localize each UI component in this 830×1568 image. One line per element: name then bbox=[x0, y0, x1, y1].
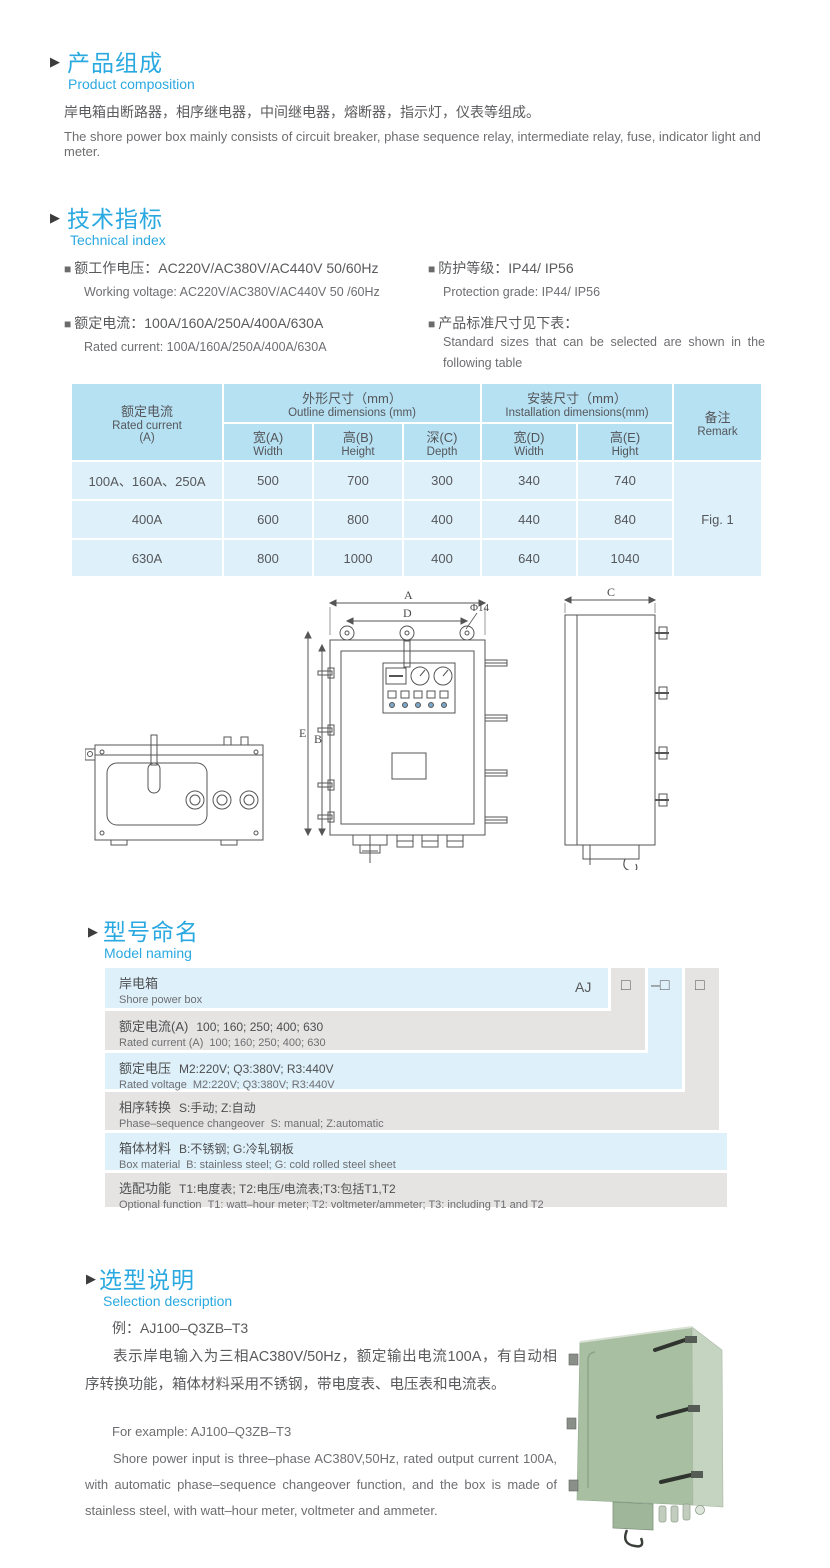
latch-icons-right bbox=[485, 660, 507, 823]
naming-row-optional-function: 选配功能T1:电度表; T2:电压/电流表;T3:包括T1,T2 Optiona… bbox=[105, 1173, 727, 1207]
group-header-outline-dimensions: 外形尺寸（mm） Outline dimensions (mm) bbox=[224, 384, 480, 422]
spec-standard-sizes-zh: ■产品标准尺寸见下表： bbox=[428, 313, 578, 333]
col-header-depth-c: 深(C)Depth bbox=[404, 424, 480, 460]
bullet-icon: ■ bbox=[64, 262, 71, 276]
cell-remark-fig1: Fig. 1 bbox=[674, 462, 761, 576]
side-view-drawing: C bbox=[565, 585, 669, 870]
catalog-page: ▶ 产品组成 Product composition 岸电箱由断路器，相序继电器… bbox=[0, 0, 830, 1568]
cell-value: 640 bbox=[482, 540, 576, 576]
table-row: 400A 600 800 400 440 840 bbox=[72, 501, 761, 538]
cell-value: 1040 bbox=[578, 540, 672, 576]
cell-value: 400 bbox=[404, 501, 480, 538]
section-title-model-naming: 型号命名 bbox=[103, 913, 199, 947]
col-header-rated-current: 额定电流 Rated current (A) bbox=[72, 384, 222, 460]
table-row: 100A、160A、250A 500 700 300 340 740 Fig. … bbox=[72, 462, 761, 499]
cell-value: 600 bbox=[224, 501, 312, 538]
col-header-width-d: 宽(D)Width bbox=[482, 424, 576, 460]
table-row: 630A 800 1000 400 640 1040 bbox=[72, 540, 761, 576]
naming-row-rated-current: 额定电流(A)100; 160; 250; 400; 630 Rated cur… bbox=[105, 1011, 645, 1050]
selection-paragraph-en: Shore power input is three–phase AC380V,… bbox=[85, 1446, 557, 1524]
cell-value: 440 bbox=[482, 501, 576, 538]
spec-rated-current-en: Rated current: 100A/160A/250A/400A/630A bbox=[84, 340, 327, 354]
cell-value: 340 bbox=[482, 462, 576, 499]
section-subtitle-technical-index: Technical index bbox=[70, 232, 166, 248]
svg-text:A: A bbox=[404, 588, 413, 602]
bullet-icon: ■ bbox=[428, 262, 435, 276]
cell-current: 630A bbox=[72, 540, 222, 576]
svg-text:E: E bbox=[299, 726, 306, 740]
product-composition-text-zh: 岸电箱由断路器，相序继电器，中间继电器，熔断器，指示灯，仪表等组成。 bbox=[64, 102, 764, 122]
naming-row-phase-sequence: 相序转换S:手动; Z:自动 Phase–sequence changeover… bbox=[105, 1092, 719, 1130]
naming-row-box-material: 箱体材料B:不锈钢; G:冷轧钢板 Box materialB: stainle… bbox=[105, 1133, 727, 1170]
svg-text:Φ14: Φ14 bbox=[470, 602, 490, 614]
spec-working-voltage-zh: ■额工作电压：AC220V/AC380V/AC440V 50/60Hz bbox=[64, 258, 379, 278]
cell-current: 100A、160A、250A bbox=[72, 462, 222, 499]
col-header-height-e: 高(E)Hight bbox=[578, 424, 672, 460]
model-naming-table: 岸电箱 Shore power box AJ □ –□ □ 额定电流(A)100… bbox=[105, 968, 765, 1207]
model-dash-box: –□ bbox=[651, 977, 670, 995]
svg-text:D: D bbox=[403, 606, 412, 620]
model-box-3: □ bbox=[695, 977, 705, 995]
product-composition-text-en: The shore power box mainly consists of c… bbox=[64, 129, 764, 159]
bottom-view-drawing bbox=[85, 735, 263, 845]
naming-row-shore-power-box: 岸电箱 Shore power box AJ bbox=[105, 968, 608, 1008]
model-box-1: □ bbox=[621, 977, 631, 995]
cell-current: 400A bbox=[72, 501, 222, 538]
selection-example-zh: 例：AJ100–Q3ZB–T3 bbox=[112, 1318, 248, 1338]
cell-value: 1000 bbox=[314, 540, 402, 576]
model-prefix: AJ bbox=[575, 979, 591, 995]
section-subtitle-selection-description: Selection description bbox=[103, 1293, 232, 1309]
cell-value: 800 bbox=[314, 501, 402, 538]
cell-value: 500 bbox=[224, 462, 312, 499]
group-header-installation-dimensions: 安装尺寸（mm） Installation dimensions(mm) bbox=[482, 384, 672, 422]
spec-working-voltage-en: Working voltage: AC220V/AC380V/AC440V 50… bbox=[84, 285, 380, 299]
naming-row-rated-voltage: 额定电压M2:220V; Q3:380V; R3:440V Rated volt… bbox=[105, 1053, 682, 1089]
section-arrow-icon: ▶ bbox=[50, 54, 60, 70]
selection-paragraph-zh: 表示岸电输入为三相AC380V/50Hz，额定输出电流100A，有自动相序转换功… bbox=[85, 1343, 557, 1399]
col-header-width-a: 宽(A)Width bbox=[224, 424, 312, 460]
product-photo bbox=[555, 1290, 825, 1568]
section-title-selection-description: 选型说明 bbox=[99, 1261, 195, 1295]
spec-rated-current-zh: ■额定电流：100A/160A/250A/400A/630A bbox=[64, 313, 323, 333]
cell-value: 400 bbox=[404, 540, 480, 576]
section-title-product-composition: 产品组成 bbox=[67, 44, 163, 78]
cell-value: 800 bbox=[224, 540, 312, 576]
size-table: 额定电流 Rated current (A) 外形尺寸（mm） Outline … bbox=[70, 382, 763, 578]
section-arrow-icon: ▶ bbox=[86, 1271, 96, 1287]
svg-text:C: C bbox=[607, 585, 615, 599]
cell-value: 740 bbox=[578, 462, 672, 499]
section-arrow-icon: ▶ bbox=[50, 210, 60, 226]
col-header-remark: 备注 Remark bbox=[674, 384, 761, 460]
section-subtitle-product-composition: Product composition bbox=[68, 76, 195, 92]
selection-example-en: For example: AJ100–Q3ZB–T3 bbox=[112, 1424, 291, 1439]
col-header-height-b: 高(B)Height bbox=[314, 424, 402, 460]
latch-icons-side bbox=[655, 627, 669, 806]
technical-drawing: A D Φ14 E B bbox=[85, 585, 760, 870]
spec-standard-sizes-en: Standard sizes that can be selected are … bbox=[443, 332, 765, 374]
green-cabinet-image bbox=[567, 1327, 723, 1546]
cell-value: 700 bbox=[314, 462, 402, 499]
spec-protection-grade-en: Protection grade: IP44/ IP56 bbox=[443, 285, 600, 299]
svg-text:B: B bbox=[314, 732, 322, 746]
section-subtitle-model-naming: Model naming bbox=[104, 945, 192, 961]
bullet-icon: ■ bbox=[428, 317, 435, 331]
spec-protection-grade-zh: ■防护等级：IP44/ IP56 bbox=[428, 258, 574, 278]
section-arrow-icon: ▶ bbox=[88, 924, 98, 940]
bullet-icon: ■ bbox=[64, 317, 71, 331]
section-title-technical-index: 技术指标 bbox=[67, 200, 163, 234]
cell-value: 300 bbox=[404, 462, 480, 499]
cell-value: 840 bbox=[578, 501, 672, 538]
front-view-drawing: A D Φ14 E B bbox=[299, 588, 507, 863]
